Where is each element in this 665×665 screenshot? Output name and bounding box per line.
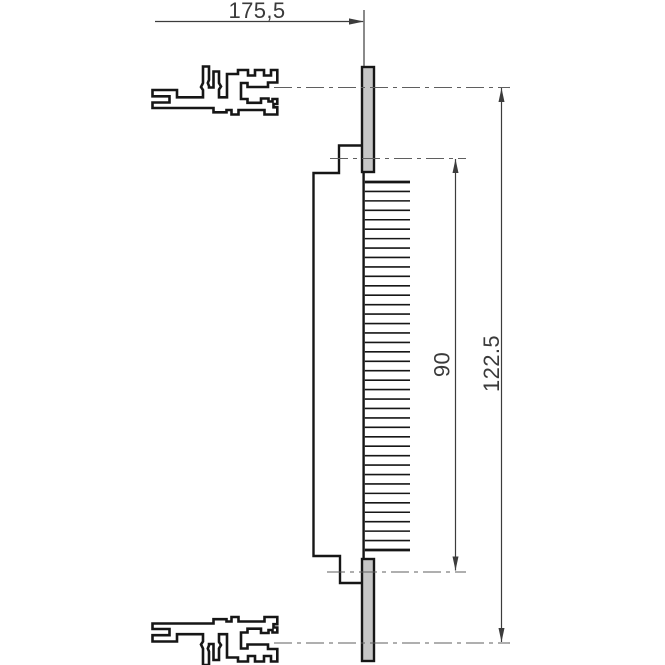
dim-arrow-down-icon	[499, 628, 505, 642]
dim-arrow-right-icon	[349, 18, 364, 24]
pin-teeth	[365, 182, 410, 550]
dim-arrow-up-icon	[453, 159, 459, 173]
dim-label-pin-field: 90	[430, 352, 455, 377]
dim-label-height: 122.5	[479, 335, 504, 392]
dimension-pin-field: 90	[430, 159, 459, 571]
connector-body-outline	[314, 146, 363, 584]
drawing-canvas: 175,5 90 122.5	[0, 0, 665, 665]
mounting-plate-top	[362, 67, 374, 172]
mounting-plate-bottom	[362, 559, 374, 661]
rail-profile-bottom	[153, 617, 278, 665]
dimension-width: 175,5	[155, 0, 364, 66]
dimension-overall-height: 122.5	[479, 88, 505, 642]
dim-arrow-up-icon	[499, 88, 505, 102]
dim-label-width: 175,5	[228, 0, 285, 23]
dim-arrow-down-icon	[453, 557, 459, 571]
rail-profile-top	[153, 67, 278, 115]
technical-drawing: 175,5 90 122.5	[0, 0, 665, 665]
